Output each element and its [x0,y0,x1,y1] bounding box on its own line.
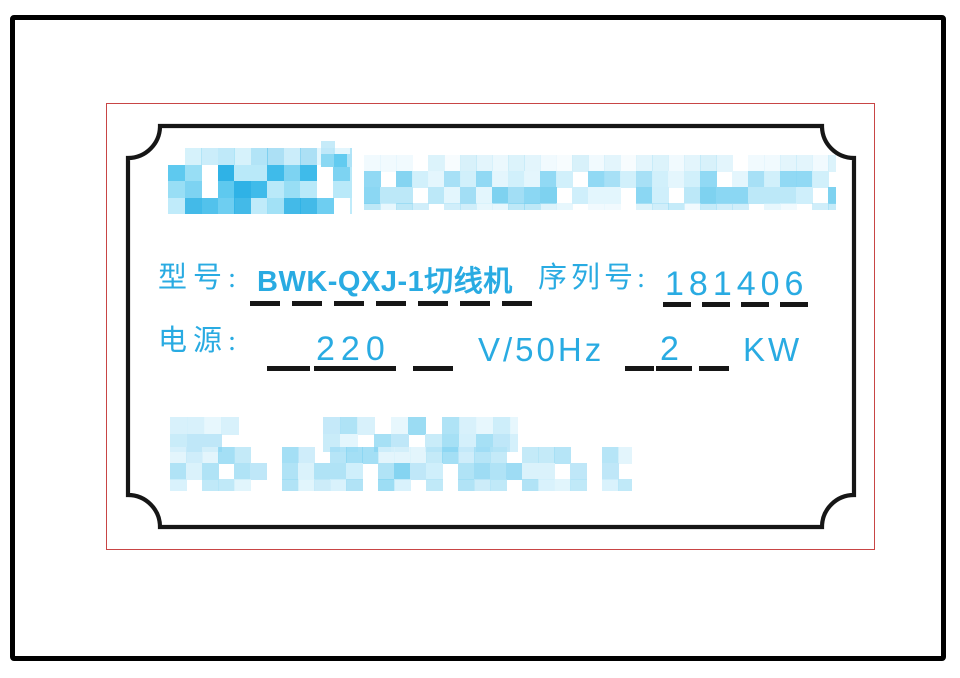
power-voltage-underline [314,366,396,371]
serial-fill-in-line [663,302,811,307]
model-fill-in-line [250,301,535,306]
power-dash-1 [267,366,310,371]
power-kw-unit: KW [743,333,802,366]
power-voltage-value: 220 [316,332,391,366]
power-label: 电源: [158,327,242,356]
power-freq-unit: V/50Hz [478,333,604,366]
serial-value: 181406 [665,267,808,301]
power-kw-underline [656,366,692,371]
model-value: BWK-QXJ-1切线机 [257,268,513,297]
redacted-footer-line-2 [170,447,632,491]
power-dash-4 [699,366,729,371]
serial-label: 序列号: [538,264,649,293]
power-dash-3 [625,366,654,371]
power-dash-2 [413,366,453,371]
model-label: 型号: [158,264,242,293]
redacted-brand-mark [321,141,352,167]
nameplate-design-sheet: 型号: BWK-QXJ-1切线机 序列号: 181406 电源: 220 V/5… [0,0,960,678]
power-kw-value: 2 [660,332,679,366]
redacted-title-band [364,155,836,210]
